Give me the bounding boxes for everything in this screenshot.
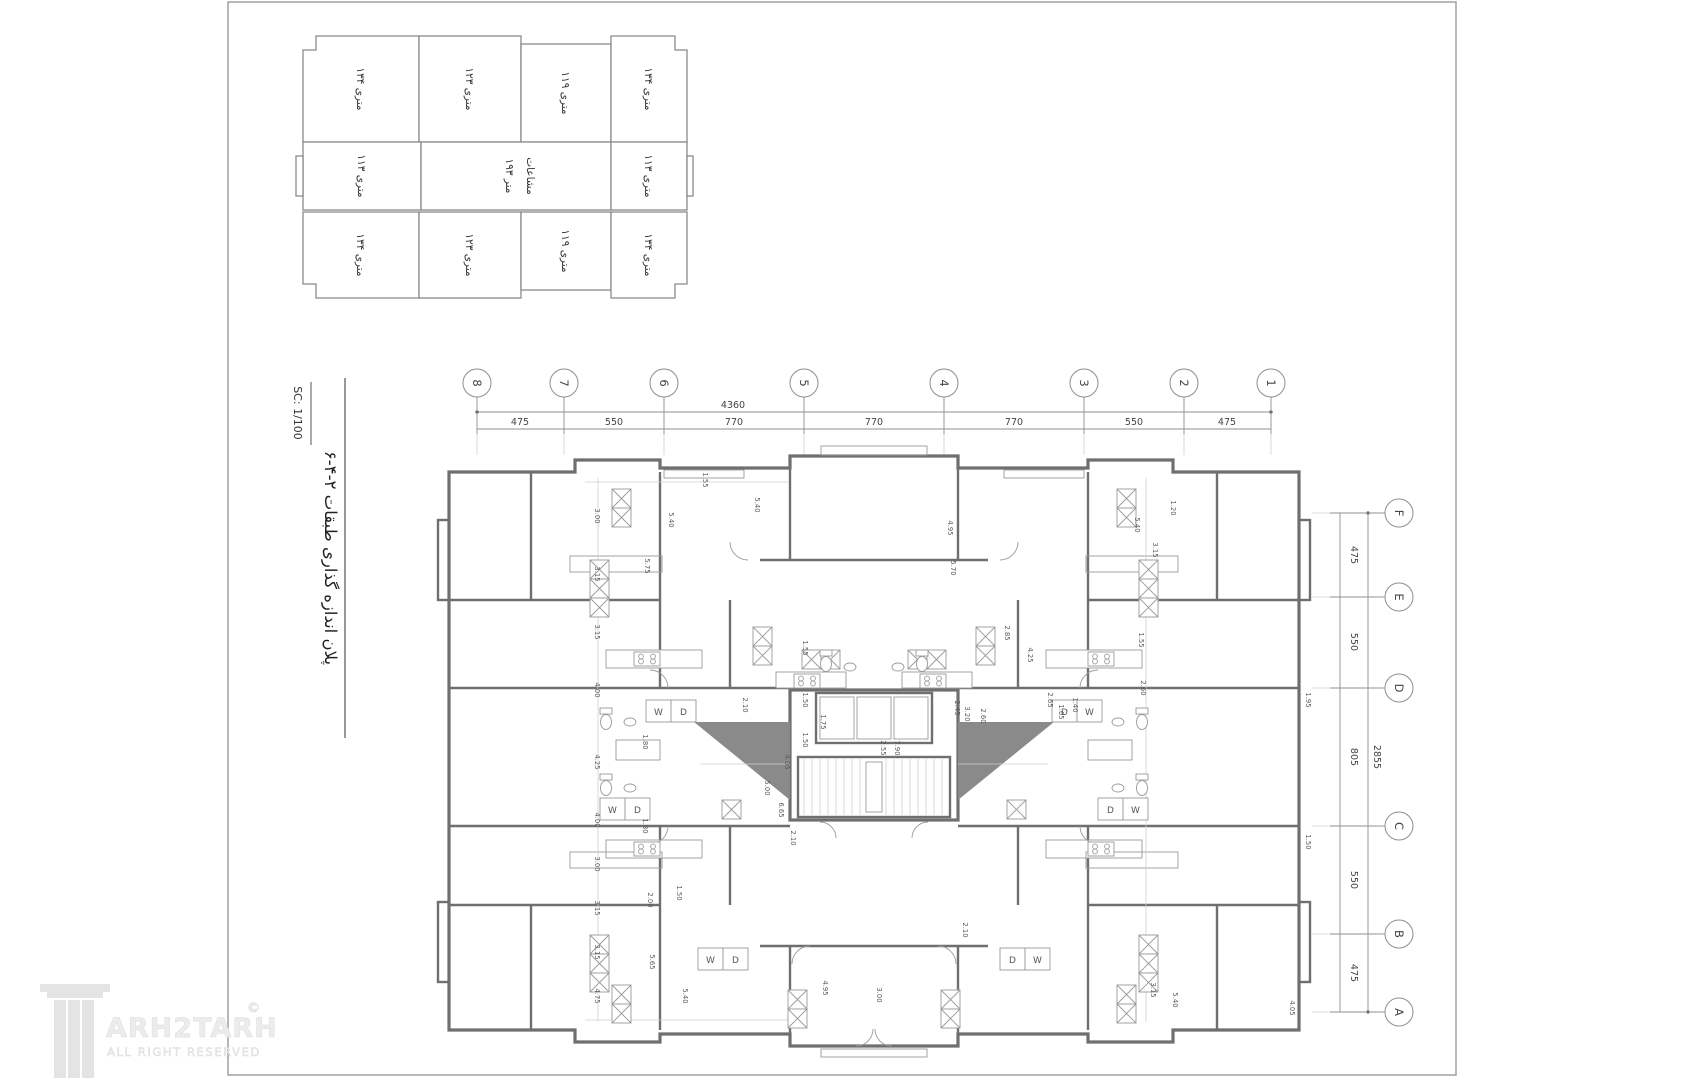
room-dimension: 5.00 xyxy=(763,780,771,795)
segment-dimension: 770 xyxy=(865,417,883,428)
floorplan-sheet: ۱۳۴ متری۱۲۳ متری۱۱۹ متری۱۳۴ متری۱۱۳ متری… xyxy=(0,0,1684,1080)
washer-dryer-label: D xyxy=(732,956,739,966)
room-dimension: 6.65 xyxy=(777,802,785,817)
keyplan-unit-area-label: ۱۲۳ متری xyxy=(463,67,475,110)
room-dimension: 2.10 xyxy=(961,922,969,937)
room-dimension: 2.10 xyxy=(741,697,749,712)
room-dimension: 4.00 xyxy=(593,682,601,697)
room-dimension: 1.20 xyxy=(1169,500,1177,515)
washer-dryer-label: W xyxy=(654,708,663,718)
grid-bubble-number: 2 xyxy=(1177,379,1191,386)
room-dimension: 2.55 xyxy=(879,740,887,755)
grid-bubble-letter: C xyxy=(1392,822,1406,830)
room-dimension: 1.95 xyxy=(1304,692,1312,707)
toilet-tank xyxy=(916,650,928,656)
washer-dryer-label: W xyxy=(1131,806,1140,816)
segment-dimension: 550 xyxy=(605,417,623,428)
room-dimension: 4.95 xyxy=(821,980,829,995)
room-dimension: 4.25 xyxy=(593,754,601,769)
room-dimension: 3.15 xyxy=(593,624,601,639)
room-dimension: 3.15 xyxy=(1151,542,1159,557)
sheet-title: پلان اندازه گذاری طبقات ۲-۴-۶ xyxy=(320,451,340,666)
washer-dryer-label: W xyxy=(706,956,715,966)
room-dimension: 2.10 xyxy=(789,830,797,845)
keyplan-common-area-label: ۱۹۳ متر xyxy=(503,159,515,194)
stove xyxy=(920,674,946,688)
grid-bubble-letter: E xyxy=(1392,593,1406,600)
watermark-tagline: ALL RIGHT RESERVED xyxy=(107,1045,261,1059)
washer-dryer-label: D xyxy=(1009,956,1016,966)
grid-bubble-letter: D xyxy=(1392,684,1406,693)
room-dimension: 1.50 xyxy=(801,732,809,747)
elevator-car xyxy=(894,697,928,739)
room-dimension: 3.00 xyxy=(593,508,601,523)
stove xyxy=(794,674,820,688)
room-dimension: 2.85 xyxy=(1003,625,1011,640)
segment-dimension: 550 xyxy=(1348,633,1359,651)
grid-bubble-letter: F xyxy=(1392,510,1406,517)
toilet xyxy=(1137,715,1148,730)
stove xyxy=(1088,652,1114,666)
room-dimension: 1.50 xyxy=(801,692,809,707)
grid-bubble-number: 1 xyxy=(1264,379,1278,386)
total-height-dimension: 2855 xyxy=(1371,745,1382,769)
room-dimension: 1.80 xyxy=(641,818,649,833)
room-dimension: 3.20 xyxy=(963,706,971,721)
keyplan-unit-area-label: ۱۱۳ متری xyxy=(355,154,367,197)
keyplan-unit-area-label: ۱۱۳ متری xyxy=(642,154,654,197)
room-dimension: 1.50 xyxy=(1304,834,1312,849)
segment-dimension: 475 xyxy=(511,417,529,428)
washer-dryer-label: W xyxy=(1085,708,1094,718)
grid-bubble-number: 3 xyxy=(1077,379,1091,386)
sink xyxy=(844,663,856,671)
segment-dimension: 475 xyxy=(1218,417,1236,428)
segment-dimension: 475 xyxy=(1348,964,1359,982)
floor-plan: WDDWWDDWWDDW 3.003.153.154.004.254.003.0… xyxy=(438,446,1312,1057)
room-dimension: 5.40 xyxy=(753,497,761,512)
segment-dimension: 550 xyxy=(1348,871,1359,889)
room-dimension: 5.65 xyxy=(648,954,656,969)
toilet xyxy=(601,781,612,796)
room-dimension: 1.40 xyxy=(1071,697,1079,712)
toilet-tank xyxy=(1136,708,1148,714)
toilet xyxy=(601,715,612,730)
room-dimension: 4.00 xyxy=(593,812,601,827)
drawing-canvas: ۱۳۴ متری۱۲۳ متری۱۱۹ متری۱۳۴ متری۱۱۳ متری… xyxy=(0,0,1684,1080)
toilet xyxy=(821,657,832,672)
pillar-T-icon xyxy=(40,984,110,1078)
washer-dryer-label: D xyxy=(1107,806,1114,816)
room-dimension: 1.65 xyxy=(1057,704,1065,719)
stove xyxy=(634,842,660,856)
room-dimension: 4.25 xyxy=(1026,647,1034,662)
grid-bubble-letter: B xyxy=(1392,930,1406,938)
room-dimension: 3.15 xyxy=(593,566,601,581)
room-dimension: 1.55 xyxy=(1137,632,1145,647)
stove xyxy=(1088,842,1114,856)
room-dimension: 4.05 xyxy=(1288,1000,1296,1015)
room-dimension: 2.00 xyxy=(646,892,654,907)
sink xyxy=(1112,718,1124,726)
room-dimension: 5.40 xyxy=(667,512,675,527)
toilet-tank xyxy=(820,650,832,656)
room-dimension: 3.15 xyxy=(593,900,601,915)
sink xyxy=(892,663,904,671)
keyplan-unit-area-label: ۱۳۴ متری xyxy=(354,233,366,276)
room-dimension: 3.15 xyxy=(1149,982,1157,997)
room-dimension: 2.60 xyxy=(1139,680,1147,695)
service-core xyxy=(790,690,958,820)
room-dimension: 3.00 xyxy=(875,987,883,1002)
segment-dimension: 805 xyxy=(1348,748,1359,766)
room-dimension: 4.95 xyxy=(946,520,954,535)
sink xyxy=(624,718,636,726)
scale-label: SC: 1/100 xyxy=(291,386,304,440)
keyplan-unit-area-label: ۱۳۴ متری xyxy=(354,67,366,110)
room-dimension: 2.45 xyxy=(953,700,961,715)
room-dimension: 2.60 xyxy=(979,708,987,723)
stair-handrail xyxy=(866,762,882,812)
room-dimension: 3.15 xyxy=(593,944,601,959)
stove xyxy=(634,652,660,666)
room-dimension: 5.40 xyxy=(1171,992,1179,1007)
sink xyxy=(1112,784,1124,792)
grid-bubble-number: 6 xyxy=(657,379,671,386)
grid-bubble-number: 5 xyxy=(797,379,811,386)
room-dimension: 1.75 xyxy=(819,714,827,729)
room-dimension: 7.90 xyxy=(893,740,901,755)
room-dimension: 5.75 xyxy=(643,558,651,573)
grid-bubble-number: 4 xyxy=(937,379,951,386)
room-dimension: 3.00 xyxy=(593,856,601,871)
sink xyxy=(624,784,636,792)
keyplan-unit-area-label: ۱۱۹ متری xyxy=(559,71,571,114)
grid-bubble-number: 8 xyxy=(470,379,484,386)
toilet xyxy=(1137,781,1148,796)
toilet-tank xyxy=(600,708,612,714)
washer-dryer-label: D xyxy=(680,708,687,718)
total-width-dimension: 4360 xyxy=(721,400,745,411)
toilet-tank xyxy=(1136,774,1148,780)
toilet-tank xyxy=(600,774,612,780)
room-dimension: 5.40 xyxy=(681,988,689,1003)
washer-dryer-label: D xyxy=(634,806,641,816)
keyplan-unit-area-label: ۱۳۴ متری xyxy=(642,233,654,276)
segment-dimension: 475 xyxy=(1348,546,1359,564)
keyplan-common-area-label: مشاعات xyxy=(524,157,536,195)
room-dimension: 1.55 xyxy=(801,640,809,655)
room-dimension: 4.05 xyxy=(783,754,791,769)
keyplan-unit-area-label: ۱۳۴ متری xyxy=(642,67,654,110)
key-plan: ۱۳۴ متری۱۲۳ متری۱۱۹ متری۱۳۴ متری۱۱۳ متری… xyxy=(296,36,693,298)
grid-bubble-number: 7 xyxy=(557,379,571,386)
elevator-car xyxy=(857,697,891,739)
segment-dimension: 770 xyxy=(1005,417,1023,428)
keyplan-unit-area-label: ۱۱۹ متری xyxy=(559,229,571,272)
watermark-brand: ARH2TARH xyxy=(106,1013,278,1044)
room-dimension: 2.65 xyxy=(1046,692,1054,707)
segment-dimension: 770 xyxy=(725,417,743,428)
room-dimension: 1.50 xyxy=(675,885,683,900)
toilet xyxy=(917,657,928,672)
grid-bubble-letter: A xyxy=(1392,1008,1406,1016)
copyright-icon: © xyxy=(247,1001,260,1016)
room-dimension: 5.40 xyxy=(1133,517,1141,532)
room-dimension: 1.55 xyxy=(701,472,709,487)
keyplan-unit-area-label: ۱۲۳ متری xyxy=(463,233,475,276)
segment-dimension: 550 xyxy=(1125,417,1143,428)
washer-dryer-label: W xyxy=(608,806,617,816)
room-dimension: 5.70 xyxy=(949,560,957,575)
room-dimension: 1.80 xyxy=(641,734,649,749)
washer-dryer-label: W xyxy=(1033,956,1042,966)
room-dimension: 4.75 xyxy=(593,988,601,1003)
